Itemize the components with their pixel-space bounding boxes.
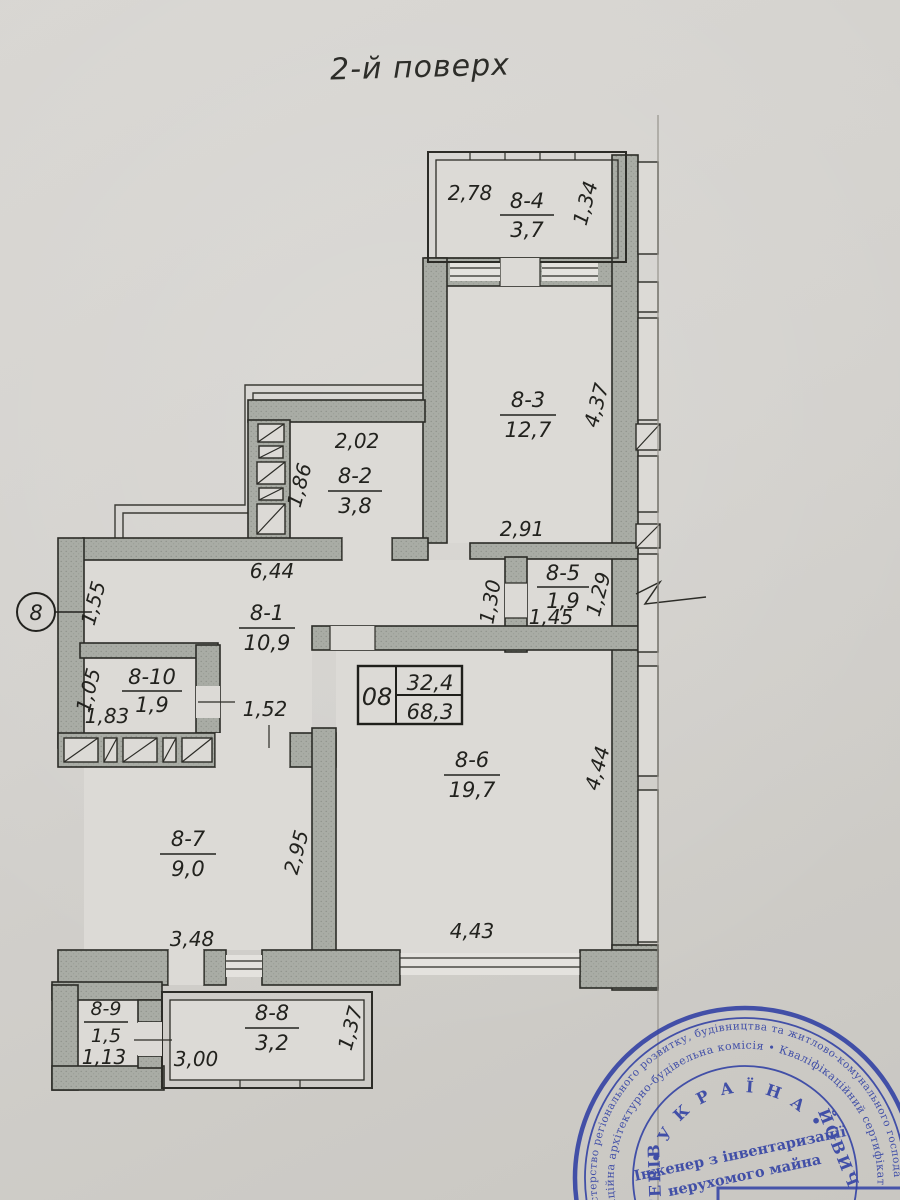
dim-3-00: 3,00 [174, 1047, 219, 1071]
room-area-8-9: 1,5 [91, 1025, 121, 1047]
room-area-8-6: 19,7 [449, 778, 496, 802]
dim-2-91: 2,91 [500, 517, 545, 541]
level-marker-number: 8 [29, 601, 42, 625]
room-area-8-3: 12,7 [505, 418, 552, 442]
apartment-info-box: 08 32,4 68,3 [358, 666, 462, 724]
scanned-floorplan-page: 2-й поверх [0, 0, 900, 1200]
dim-1-52: 1,52 [243, 697, 288, 721]
inspector-stamp: • Міністерство регіонального розвитку, б… [543, 976, 900, 1200]
shaft-row-87 [64, 738, 212, 762]
floor-plan-svg: 8-1 10,9 8-2 3,8 8-3 12,7 8-4 3,7 8-5 1,… [0, 0, 900, 1200]
dim-4-43: 4,43 [450, 919, 495, 943]
room-id-8-8: 8-8 [255, 1001, 289, 1025]
room-id-8-4: 8-4 [510, 189, 544, 213]
dim-1-13: 1,13 [82, 1045, 127, 1069]
dim-3-48: 3,48 [170, 927, 215, 951]
room-area-8-7: 9,0 [171, 857, 204, 881]
room-id-8-10: 8-10 [128, 665, 176, 689]
room-id-8-3: 8-3 [511, 388, 545, 412]
dim-1-45: 1,45 [529, 605, 574, 629]
total-area: 68,3 [407, 700, 454, 724]
living-area: 32,4 [407, 671, 454, 695]
dim-2-02: 2,02 [335, 429, 380, 453]
room-area-8-4: 3,7 [510, 218, 544, 242]
room-area-8-2: 3,8 [338, 494, 371, 518]
room-id-8-6: 8-6 [455, 748, 489, 772]
room-area-8-1: 10,9 [244, 631, 291, 655]
apartment-number: 08 [362, 683, 393, 711]
shaft-column-82 [257, 424, 285, 534]
room-area-8-8: 3,2 [255, 1031, 288, 1055]
dim-6-44: 6,44 [250, 559, 295, 583]
corridor-side-boxes [636, 162, 660, 942]
dim-2-78: 2,78 [448, 181, 493, 205]
dim-1-83: 1,83 [85, 704, 130, 728]
room-area-8-10: 1,9 [135, 693, 168, 717]
room-id-8-9: 8-9 [90, 998, 121, 1020]
room-id-8-2: 8-2 [338, 464, 372, 488]
room-id-8-7: 8-7 [171, 827, 206, 851]
room-id-8-5: 8-5 [546, 561, 580, 585]
stamp-frame-box [718, 1188, 900, 1200]
room-id-8-1: 8-1 [250, 601, 284, 625]
